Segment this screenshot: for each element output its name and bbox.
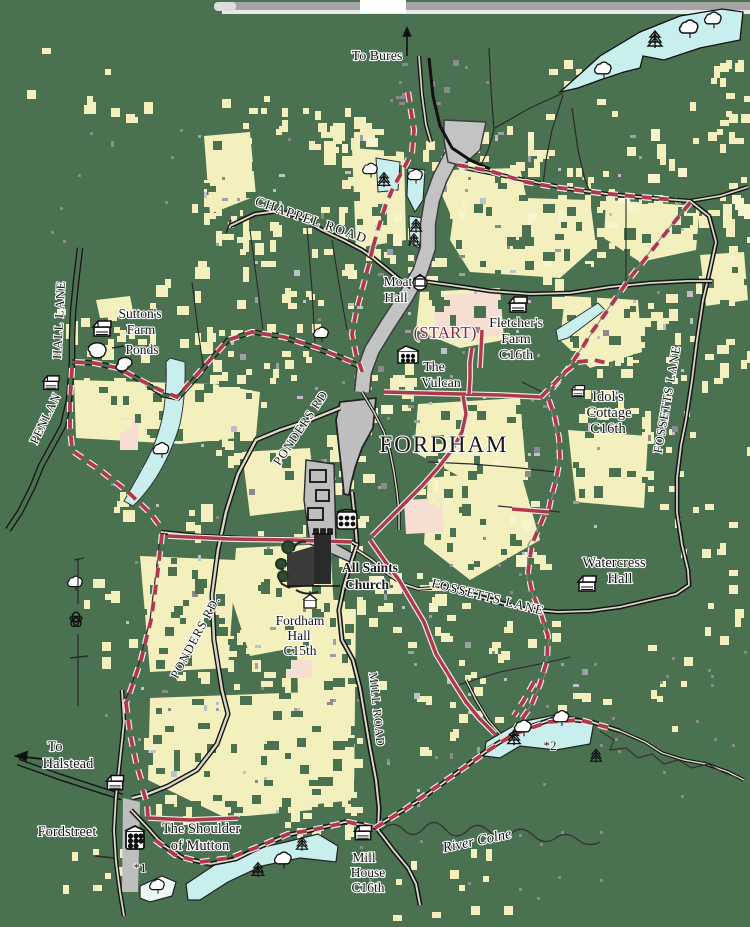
- svg-text:Hall: Hall: [608, 571, 633, 587]
- svg-text:The: The: [423, 360, 445, 375]
- svg-text:*1: *1: [134, 860, 147, 875]
- svg-text:Farm: Farm: [127, 322, 156, 337]
- svg-text:C15th: C15th: [283, 643, 316, 658]
- svg-text:Vulcan: Vulcan: [421, 376, 461, 391]
- svg-text:Idol's: Idol's: [592, 389, 624, 405]
- svg-text:Church: Church: [345, 577, 390, 592]
- svg-text:Mill: Mill: [352, 850, 376, 865]
- svg-text:FORDHAM: FORDHAM: [379, 432, 508, 457]
- svg-text:C16th: C16th: [590, 421, 626, 437]
- svg-text:The Shoulder: The Shoulder: [162, 821, 241, 837]
- svg-text:Hall: Hall: [384, 290, 407, 305]
- svg-text:Hall: Hall: [287, 628, 310, 643]
- svg-text:Cottage: Cottage: [586, 405, 631, 421]
- svg-text:Farm: Farm: [501, 332, 531, 347]
- svg-text:Fordham: Fordham: [276, 613, 325, 628]
- svg-text:All Saints: All Saints: [342, 560, 398, 575]
- svg-text:(START): (START): [414, 323, 477, 342]
- svg-text:Fletcher's: Fletcher's: [489, 316, 543, 331]
- svg-text:Watercress: Watercress: [582, 555, 646, 571]
- svg-text:C16th: C16th: [351, 880, 384, 895]
- svg-text:Ponds: Ponds: [125, 342, 158, 357]
- svg-text:of Mutton: of Mutton: [171, 838, 230, 854]
- svg-text:Fordstreet: Fordstreet: [38, 824, 97, 840]
- svg-text:Halstead: Halstead: [43, 756, 94, 772]
- svg-text:To Bures: To Bures: [352, 49, 403, 64]
- svg-text:Sutton's: Sutton's: [119, 306, 162, 321]
- svg-text:C16th: C16th: [499, 348, 533, 363]
- svg-text:*2: *2: [544, 738, 557, 753]
- svg-text:Moat: Moat: [384, 274, 413, 289]
- svg-text:House: House: [351, 865, 386, 880]
- svg-text:To: To: [47, 739, 62, 755]
